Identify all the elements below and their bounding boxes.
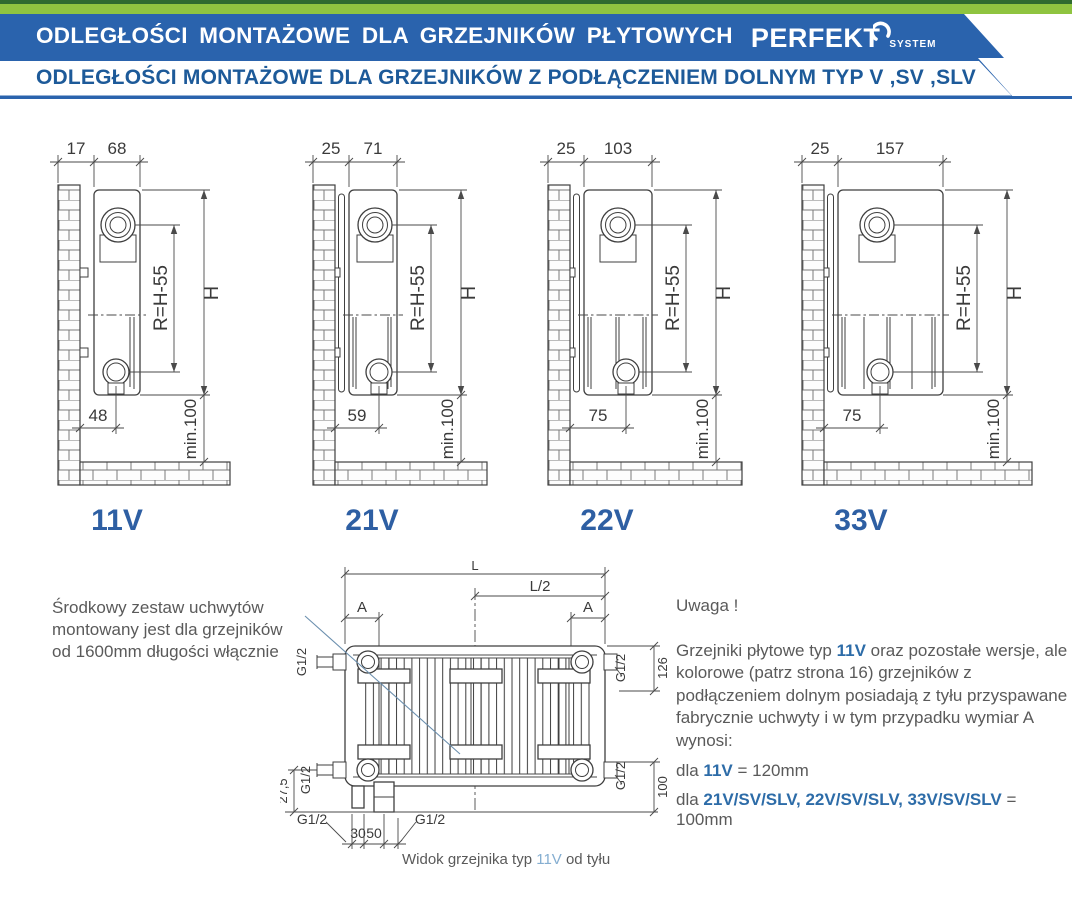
- top-dimension: 25 103: [540, 140, 660, 187]
- top-dimension: 25 71: [305, 140, 405, 187]
- dim-depth: 68: [108, 140, 127, 158]
- dim-min: min.100: [693, 399, 712, 459]
- dim-a-right: A: [583, 599, 593, 616]
- diagram-11v: 17 68 R=H-55 H: [28, 140, 258, 538]
- diagram-21v-drawing: 25 71 R=H-55: [283, 140, 515, 492]
- dim-l: L: [471, 558, 478, 573]
- dim-min: min.100: [984, 399, 1003, 459]
- dim-100: 100: [655, 776, 670, 798]
- warning-paragraph: Grzejniki płytowe typ 11V oraz pozostałe…: [676, 640, 1072, 752]
- dim-g12-left-bottom: G1/2: [298, 766, 313, 794]
- subtitle-banner: ODLEGŁOŚCI MONTAŻOWE DLA GRZEJNIKÓW Z PO…: [0, 58, 1014, 98]
- min100-dimension: min.100: [984, 391, 1011, 466]
- dim-depth: 157: [876, 140, 904, 158]
- dimension-a-11v: dla 11V = 120mm: [676, 761, 1072, 781]
- bracket-note-line1: Środkowy zestaw uchwytów: [52, 597, 283, 619]
- dim-30: 30: [350, 825, 366, 841]
- warning-text-pre: Grzejniki płytowe typ: [676, 641, 837, 660]
- brand-sub: SYSTEM: [889, 39, 936, 50]
- dimension-a-others: dla 21V/SV/SLV, 22V/SV/SLV, 33V/SV/SLV =…: [676, 790, 1072, 830]
- catalog-page: ODLEGŁOŚCI MONTAŻOWE DLA GRZEJNIKÓW PŁYT…: [0, 0, 1072, 898]
- diagram-22v-drawing: 25 103 R=H-55: [518, 140, 770, 492]
- caption-suffix: od tyłu: [562, 851, 610, 868]
- warning-type-11v: 11V: [837, 641, 866, 660]
- dim-r: R=H-55: [954, 265, 975, 331]
- l1-pre: dla: [676, 761, 703, 780]
- page-title: ODLEGŁOŚCI MONTAŻOWE DLA GRZEJNIKÓW PŁYT…: [36, 23, 733, 49]
- top-dimension: 25 157: [794, 140, 951, 187]
- l2-pre: dla: [676, 790, 703, 809]
- dim-wall-offset: 25: [811, 140, 830, 158]
- diagram-33v-drawing: 25 157 R=H-55: [772, 140, 1060, 492]
- caption-prefix: Widok grzejnika typ: [402, 851, 536, 868]
- page-subtitle: ODLEGŁOŚCI MONTAŻOWE DLA GRZEJNIKÓW Z PO…: [36, 66, 976, 90]
- dim-50: 50: [366, 825, 382, 841]
- dim-pipe-offset: 75: [589, 406, 608, 425]
- dim-g12-bottom-left: G1/2: [297, 811, 328, 827]
- top-strip-green: [0, 4, 1072, 14]
- dim-h: H: [201, 286, 223, 300]
- dim-l2: L/2: [530, 578, 551, 595]
- radiator-body: [80, 190, 146, 395]
- rear-bottom-dimensions: 30 50 G1/2 G1/2: [297, 811, 446, 849]
- rear-view-caption: Widok grzejnika typ 11V od tyłu: [402, 851, 610, 868]
- dim-wall-offset: 17: [67, 140, 86, 158]
- dim-depth: 71: [364, 140, 383, 158]
- header-banner: ODLEGŁOŚCI MONTAŻOWE DLA GRZEJNIKÓW PŁYT…: [0, 14, 1004, 58]
- min100-dimension: min.100: [438, 391, 465, 466]
- dim-min: min.100: [438, 399, 457, 459]
- l2-types: 21V/SV/SLV, 22V/SV/SLV, 33V/SV/SLV: [703, 790, 1001, 809]
- l1-value: = 120mm: [733, 761, 809, 780]
- dim-h: H: [713, 286, 735, 300]
- dim-g12-left-top: G1/2: [294, 648, 309, 676]
- dim-h: H: [458, 286, 480, 300]
- min100-dimension: min.100: [693, 391, 720, 466]
- bracket-note: Środkowy zestaw uchwytów montowany jest …: [52, 597, 283, 663]
- dim-min: min.100: [181, 399, 200, 459]
- dim-pipe-offset: 48: [89, 406, 108, 425]
- caption-type: 11V: [536, 851, 562, 868]
- dim-r: R=H-55: [151, 265, 172, 331]
- bracket-note-line3: od 1600mm długości włącznie: [52, 641, 283, 663]
- top-dimension: 17 68: [50, 140, 148, 187]
- diagram-22v: 25 103 R=H-55: [518, 140, 770, 538]
- diagram-33v: 25 157 R=H-55: [772, 140, 1060, 538]
- dim-a-left: A: [357, 599, 367, 616]
- dim-r: R=H-55: [663, 265, 684, 331]
- radiator-body: [335, 190, 403, 395]
- warning-title: Uwaga !: [676, 596, 1072, 616]
- bracket-note-line2: montowany jest dla grzejników: [52, 619, 283, 641]
- diagram-21v: 25 71 R=H-55: [283, 140, 515, 538]
- dim-g12-bottom-right: G1/2: [415, 811, 446, 827]
- perfekt-logo: PERFEKT SYSTEM: [751, 20, 937, 52]
- dim-pipe-offset: 59: [348, 406, 367, 425]
- diagram-11v-drawing: 17 68 R=H-55 H: [28, 140, 258, 492]
- dim-126: 126: [655, 657, 670, 679]
- type-label-11v: 11V: [28, 504, 206, 538]
- dim-pipe-offset: 75: [843, 406, 862, 425]
- rear-radiator-body: [345, 646, 605, 786]
- dim-275: 27,5: [280, 778, 290, 803]
- type-label-21v: 21V: [283, 504, 461, 538]
- min100-dimension: min.100: [181, 391, 208, 466]
- r-dimension: R=H-55: [392, 225, 437, 372]
- l1-type: 11V: [703, 761, 732, 780]
- type-label-22v: 22V: [518, 504, 696, 538]
- radiator-body: [570, 190, 658, 395]
- dim-wall-offset: 25: [322, 140, 341, 158]
- dim-wall-offset: 25: [557, 140, 576, 158]
- radiator-body: [824, 190, 949, 395]
- dim-h: H: [1004, 286, 1026, 300]
- rear-view-drawing: L L/2 A A: [280, 558, 680, 893]
- brand-wordmark: PERFEKT: [751, 25, 881, 52]
- type-label-33v: 33V: [772, 504, 950, 538]
- dim-depth: 103: [604, 140, 632, 158]
- dim-r: R=H-55: [408, 265, 429, 331]
- header-divider: [0, 96, 1072, 99]
- warning-note: Uwaga ! Grzejniki płytowe typ 11V oraz p…: [676, 596, 1072, 830]
